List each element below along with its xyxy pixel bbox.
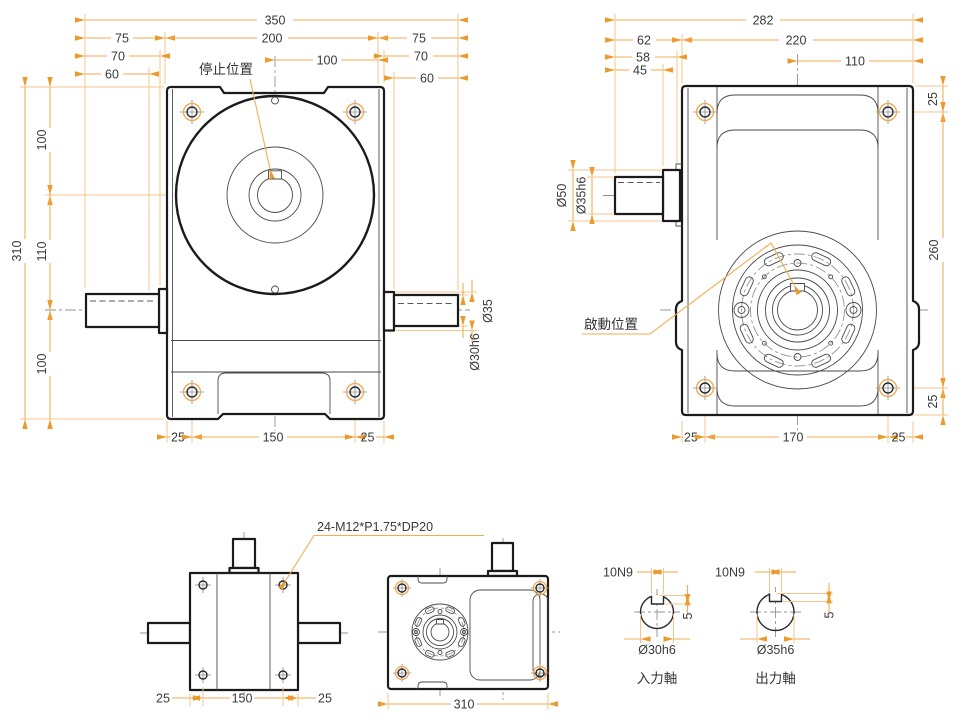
top-right-shaft xyxy=(298,623,340,643)
top-left-shaft xyxy=(148,623,190,643)
dim-right-60: 60 xyxy=(420,72,434,86)
dim-body-width: 200 xyxy=(262,32,283,46)
small-vertical-shaft xyxy=(492,543,513,571)
dim-collar-dia: Ø50 xyxy=(555,184,569,208)
dim-shaft-to-bottom: 100 xyxy=(35,354,49,375)
dim-top-foot-right: 25 xyxy=(318,692,332,706)
input-keyway-width: 10N9 xyxy=(603,566,633,580)
front-body-outline xyxy=(167,87,384,419)
dim-45: 45 xyxy=(633,64,647,78)
drawing-canvas: 350 75 200 75 70 100 70 60 60 310 100 11… xyxy=(0,0,961,717)
front-bore-keyway xyxy=(269,171,282,179)
front-view: 350 75 200 75 70 100 70 60 60 310 100 11… xyxy=(10,14,495,445)
thread-note-leader xyxy=(286,536,314,581)
dim-right-70: 70 xyxy=(414,50,428,64)
dim-shaft-protrusion: 62 xyxy=(637,34,651,48)
dim-small-overall: 310 xyxy=(454,698,475,712)
dim-bottom-hole-offset: 25 xyxy=(926,395,940,409)
dim-body-depth: 220 xyxy=(786,34,807,48)
input-shaft-title: 入力軸 xyxy=(637,671,678,686)
dim-side-foot-right: 25 xyxy=(892,431,906,445)
dim-hole-span-vertical: 260 xyxy=(927,240,941,261)
dim-side-foot-span: 170 xyxy=(783,431,804,445)
dim-center-to-shaft: 110 xyxy=(35,241,49,261)
dim-left-70: 70 xyxy=(111,50,125,64)
output-shaft-dia: Ø35h6 xyxy=(757,643,795,657)
front-right-shaft xyxy=(394,295,458,326)
dim-foot-span: 150 xyxy=(263,431,284,445)
thread-note: 24-M12*P1.75*DP20 xyxy=(317,520,433,534)
top-vertical-shaft xyxy=(233,539,255,568)
dim-side-center-to-edge: 110 xyxy=(845,55,865,69)
small-dimensions: 310 xyxy=(388,693,548,712)
start-position-label: 啟動位置 xyxy=(584,317,638,332)
dim-shaft-dia: Ø30h6 xyxy=(468,333,482,371)
output-keyway-width: 10N9 xyxy=(715,566,745,580)
dim-top-foot-span: 150 xyxy=(232,692,253,706)
input-dimensions: 10N9 5 Ø30h6 xyxy=(603,566,695,658)
dim-top-to-center: 100 xyxy=(35,130,49,151)
output-shaft-title: 出力軸 xyxy=(755,671,796,686)
dim-top-hole-offset: 25 xyxy=(926,92,940,106)
dim-side-foot-left: 25 xyxy=(684,431,698,445)
dim-shaft-step-dia: Ø35 xyxy=(481,299,495,323)
dim-overall-width: 350 xyxy=(265,14,286,28)
dim-side-overall-width: 282 xyxy=(753,14,774,28)
side-small-view: 310 xyxy=(378,538,560,712)
input-shaft-section: 10N9 5 Ø30h6 入力軸 xyxy=(603,566,695,687)
dim-right-shaft: 75 xyxy=(412,32,426,46)
front-right-collar xyxy=(384,292,394,331)
dim-58: 58 xyxy=(636,51,650,65)
output-keyway-depth: 5 xyxy=(823,611,837,618)
output-shaft-section: 10N9 5 Ø35h6 出力軸 xyxy=(715,566,836,687)
side-input-collar xyxy=(663,170,680,221)
dim-top-foot-left: 25 xyxy=(156,692,170,706)
front-left-shaft xyxy=(86,294,159,327)
technical-drawing: 350 75 200 75 70 100 70 60 60 310 100 11… xyxy=(0,0,961,717)
dim-foot-left: 25 xyxy=(171,431,185,445)
front-left-collar xyxy=(159,289,167,333)
dim-left-shaft: 75 xyxy=(115,32,129,46)
dim-foot-right: 25 xyxy=(361,431,375,445)
stop-position-label: 停止位置 xyxy=(199,61,253,77)
input-keyway-depth: 5 xyxy=(681,612,695,619)
dim-side-shaft-dia: Ø35h6 xyxy=(575,177,589,215)
side-view: 282 62 220 58 45 110 25 260 25 25 170 25… xyxy=(555,14,948,445)
dim-center-to-edge: 100 xyxy=(317,54,338,68)
input-shaft-dia: Ø30h6 xyxy=(638,643,676,657)
dim-overall-height: 310 xyxy=(10,241,24,262)
dim-left-60: 60 xyxy=(105,68,119,82)
side-bore-keyway xyxy=(791,284,805,292)
